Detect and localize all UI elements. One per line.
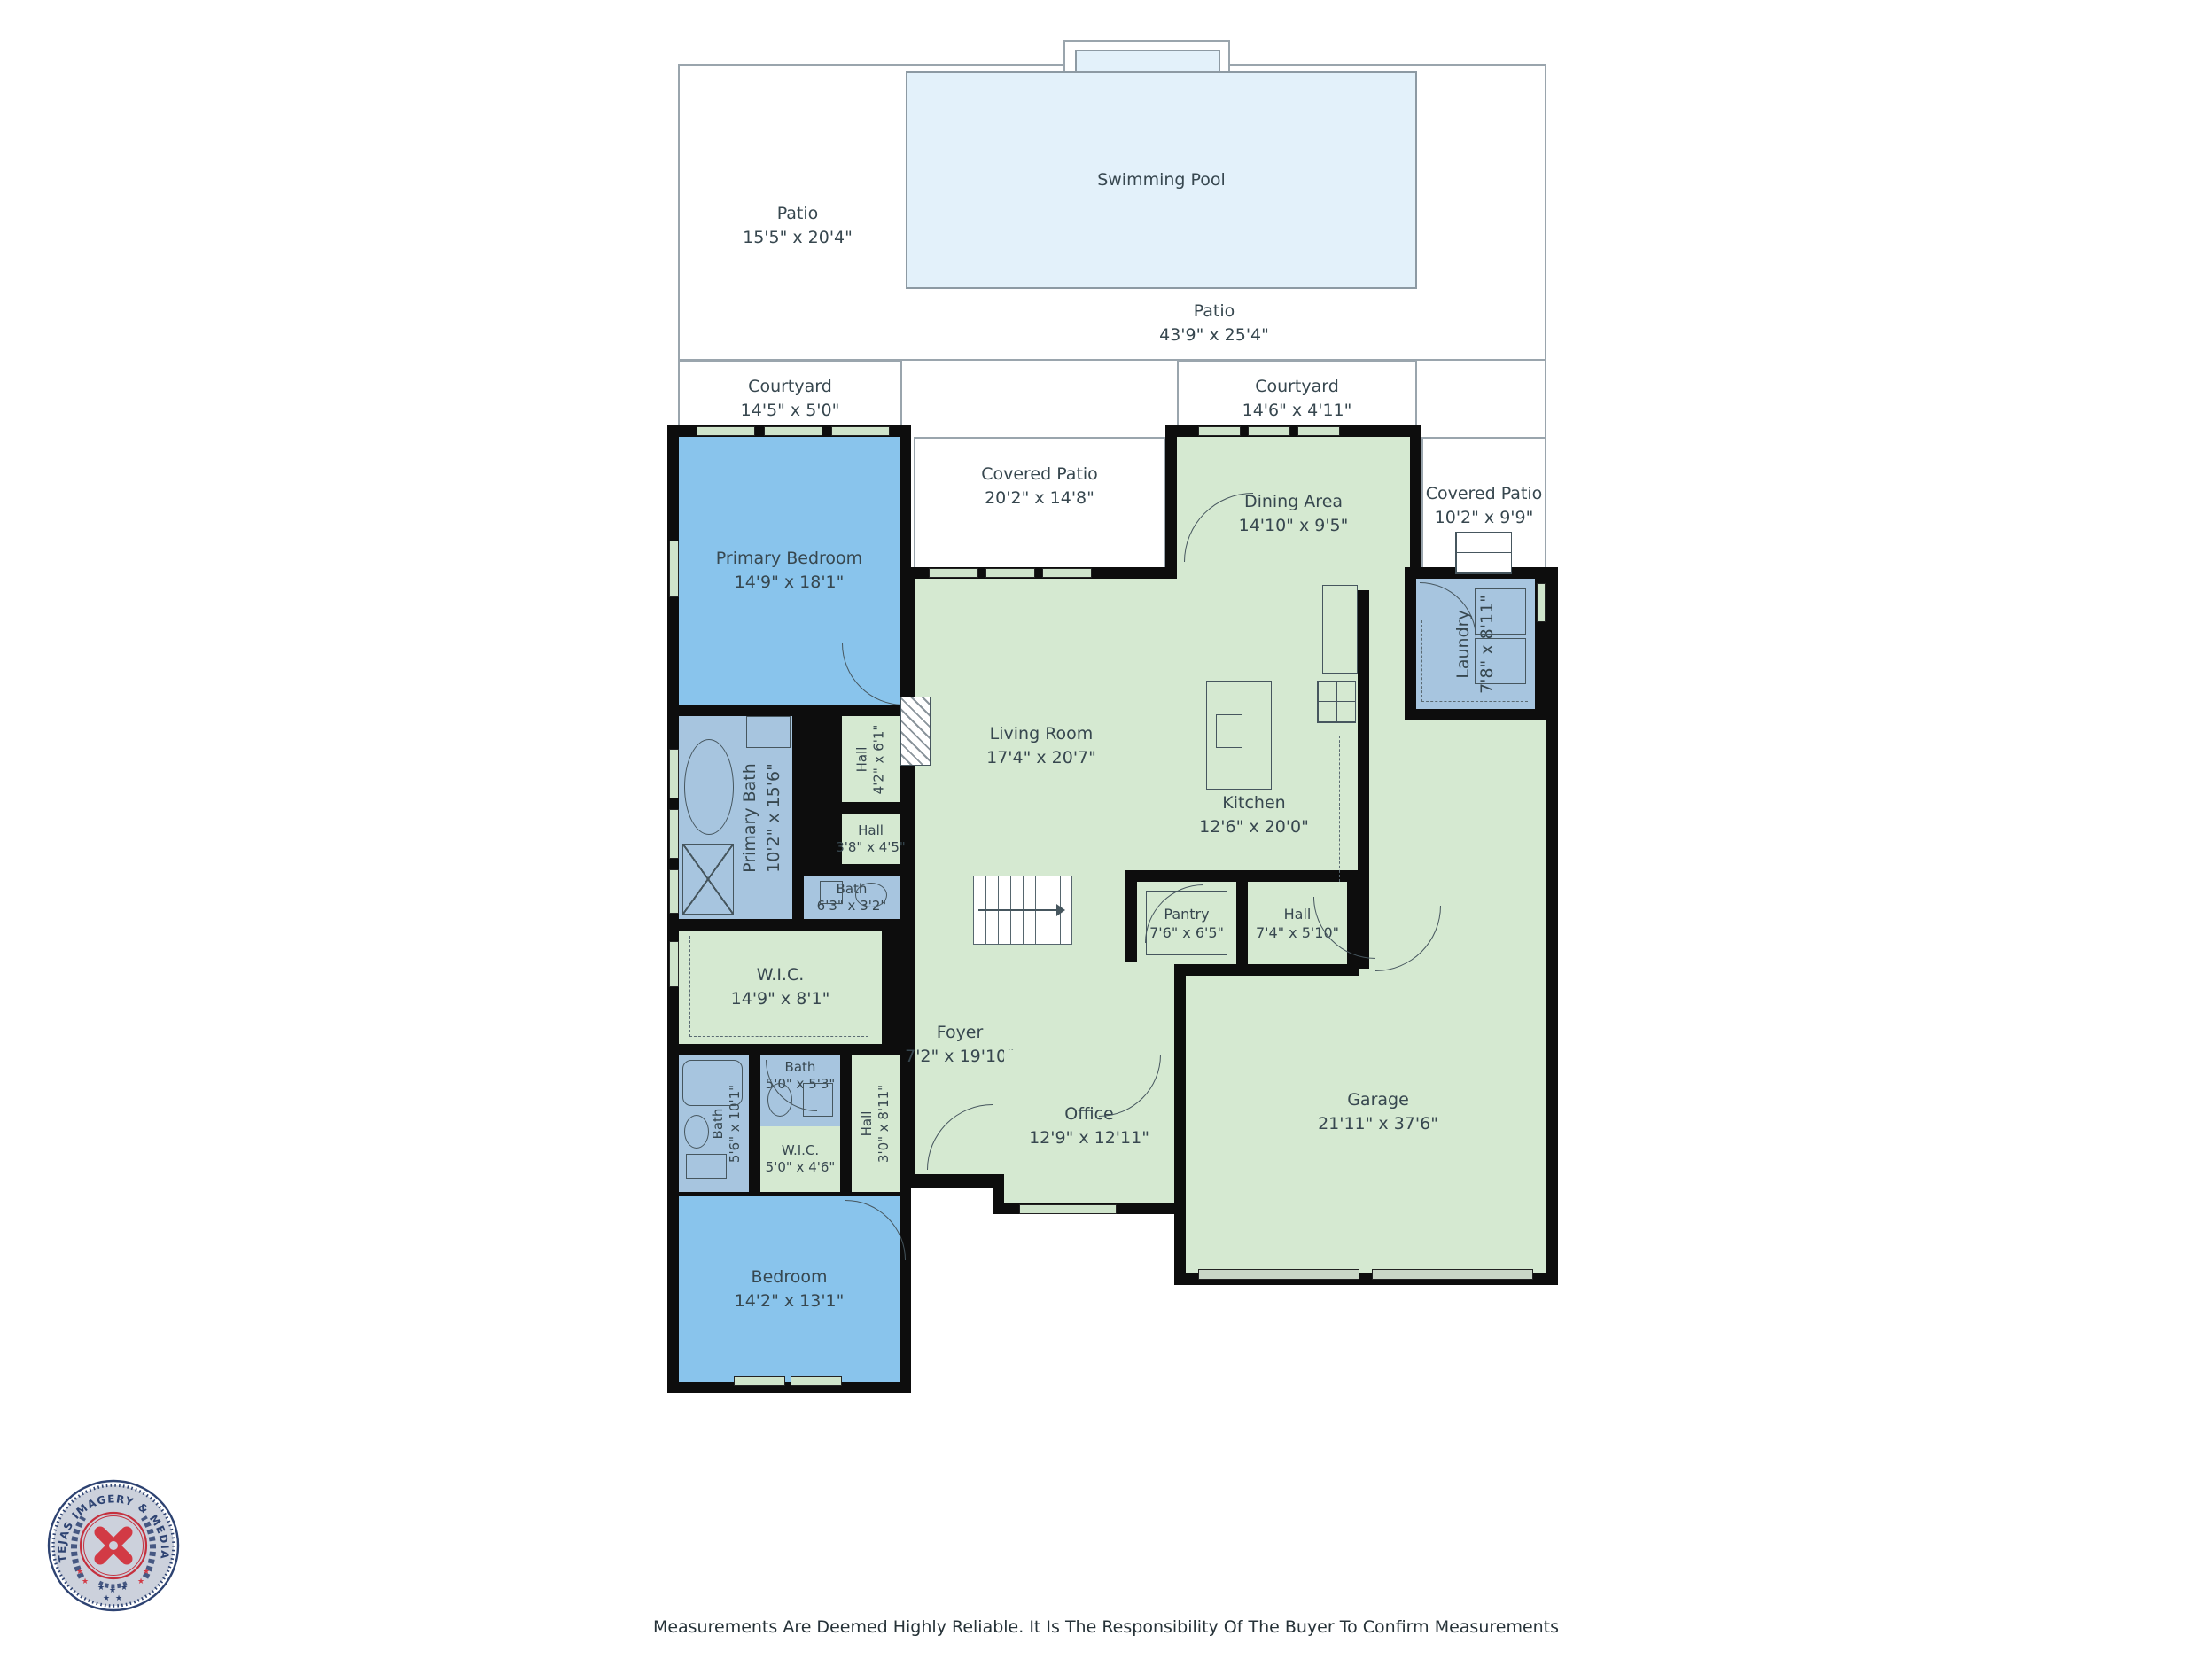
window — [764, 426, 822, 436]
sink-icon — [746, 716, 791, 748]
patio-main-label: Patio43'9" x 25'4" — [1125, 300, 1303, 347]
hall-mid-label: Hall3'8" x 4'5" — [836, 822, 906, 856]
room-wic-small: W.I.C.5'0" x 4'6" — [760, 1126, 840, 1192]
window — [1198, 426, 1241, 436]
logo-seal-graphic: TEJAS IMAGERY & MEDIA SERVICES ★★ ★★ ★★★… — [46, 1478, 181, 1613]
garage-door — [1372, 1269, 1533, 1280]
wic-shelf-dash — [689, 936, 868, 1037]
primary-bath-label: Primary Bath10'2" x 15'6" — [738, 763, 786, 873]
room-hall-lower: Hall3'0" x 8'11" — [852, 1055, 900, 1192]
window — [669, 541, 679, 597]
window — [1019, 1204, 1117, 1214]
fireplace — [900, 697, 931, 766]
window — [1042, 568, 1092, 578]
office-label: Office12'9" x 12'11" — [1029, 1102, 1149, 1150]
svg-text:★: ★ — [97, 1584, 105, 1593]
covered-patio-center-label: Covered Patio20'2" x 14'8" — [981, 463, 1098, 510]
window — [1248, 426, 1290, 436]
bathtub-icon — [684, 739, 734, 835]
window — [1297, 426, 1340, 436]
window — [697, 426, 755, 436]
window — [929, 568, 978, 578]
window — [669, 941, 679, 987]
room-hall-mid: Hall3'8" x 4'5" — [842, 814, 900, 864]
courtyard-right-label: Courtyard14'6" x 4'11" — [1242, 375, 1352, 423]
svg-text:★: ★ — [137, 1577, 144, 1586]
room-hall-upper: Hall4'2" x 6'1" — [842, 716, 900, 802]
hall-lower-label: Hall3'0" x 8'11" — [859, 1085, 892, 1163]
svg-text:★: ★ — [103, 1594, 110, 1603]
svg-text:★: ★ — [121, 1584, 128, 1593]
grill-icon — [1455, 532, 1512, 574]
sink-icon — [1216, 714, 1242, 748]
living-room-label: Living Room17'4" x 20'7" — [966, 722, 1117, 770]
stairs-direction-arrow — [978, 909, 1056, 911]
kitchen-counter — [1322, 585, 1358, 674]
window — [831, 426, 890, 436]
covered-patio-right-label: Covered Patio10'2" x 9'9" — [1426, 482, 1543, 530]
toilet-icon — [855, 883, 887, 907]
tejas-imagery-logo: TEJAS IMAGERY & MEDIA SERVICES ★★ ★★ ★★★… — [46, 1478, 181, 1613]
swimming-pool-label: Swimming Pool — [1097, 168, 1226, 192]
window — [791, 1376, 842, 1386]
sink-icon — [820, 881, 843, 904]
kitchen-label: Kitchen12'6" x 20'0" — [1170, 791, 1338, 839]
counter-dash-line — [1339, 736, 1340, 882]
svg-text:★: ★ — [143, 1568, 150, 1577]
bathtub-icon — [682, 1060, 743, 1106]
bedroom-label: Bedroom14'2" x 13'1" — [735, 1266, 845, 1313]
covered-patio-center: Covered Patio20'2" x 14'8" — [914, 437, 1165, 575]
stairs-arrow-head — [1056, 904, 1065, 916]
window — [669, 869, 679, 914]
svg-text:★: ★ — [76, 1568, 83, 1577]
window — [669, 749, 679, 798]
window — [1537, 583, 1546, 622]
measurement-disclaimer: Measurements Are Deemed Highly Reliable.… — [0, 1617, 2212, 1637]
primary-bedroom-label: Primary Bedroom14'9" x 18'1" — [716, 547, 862, 595]
floor-plan-canvas: Swimming Pool Patio15'5" x 20'4" Patio43… — [0, 0, 2212, 1659]
window — [734, 1376, 785, 1386]
window — [985, 568, 1035, 578]
hall-upper-label: Hall4'2" x 6'1" — [854, 724, 888, 794]
toilet-icon — [684, 1115, 709, 1149]
wic-small-label: W.I.C.5'0" x 4'6" — [766, 1142, 836, 1176]
garage-door — [1198, 1269, 1359, 1280]
svg-text:★: ★ — [115, 1594, 122, 1603]
svg-text:★: ★ — [82, 1577, 89, 1586]
cooktop-icon — [1317, 681, 1356, 723]
dining-area-label: Dining Area14'10" x 9'5" — [1239, 490, 1349, 538]
courtyard-left-label: Courtyard14'5" x 5'0" — [741, 375, 840, 423]
sink-icon — [686, 1154, 727, 1179]
garage-label: Garage21'11" x 37'6" — [1294, 1088, 1462, 1136]
patio-edge-line — [1545, 361, 1546, 437]
patio-left-label: Patio15'5" x 20'4" — [709, 202, 886, 250]
swimming-pool: Swimming Pool — [906, 71, 1417, 289]
shower-icon — [682, 844, 734, 915]
window — [669, 809, 679, 859]
